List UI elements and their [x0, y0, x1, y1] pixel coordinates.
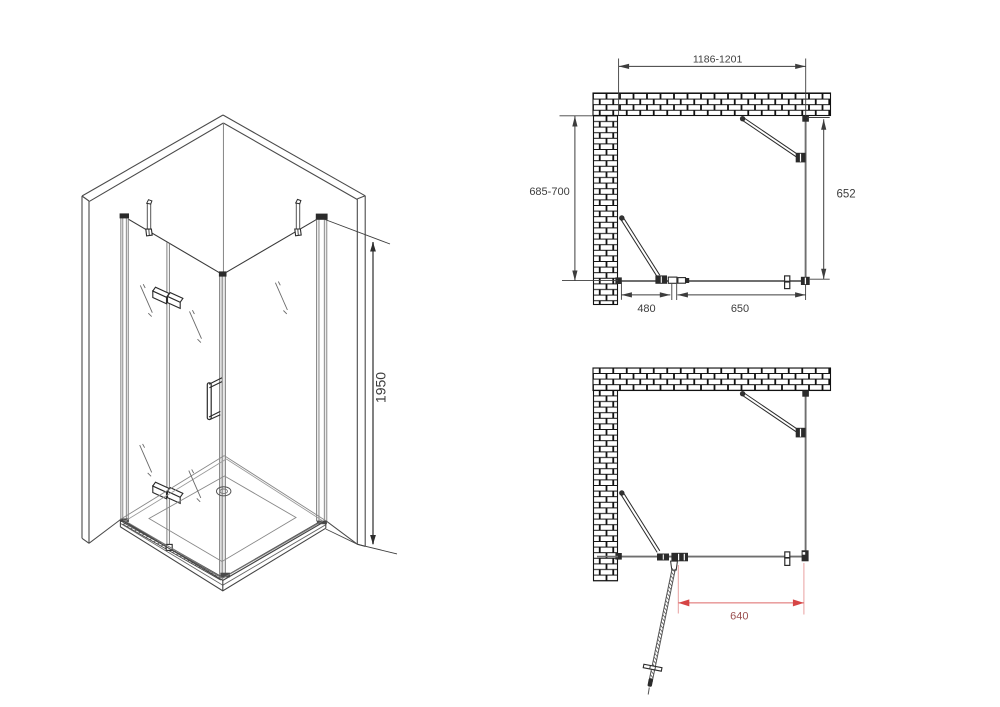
- svg-text:1950: 1950: [373, 372, 389, 403]
- svg-text:480: 480: [637, 303, 655, 315]
- svg-text:652: 652: [837, 189, 856, 201]
- svg-text:685-700: 685-700: [529, 186, 569, 198]
- svg-text:1186-1201: 1186-1201: [693, 53, 743, 65]
- svg-text:640: 640: [730, 611, 748, 623]
- svg-text:650: 650: [731, 303, 749, 315]
